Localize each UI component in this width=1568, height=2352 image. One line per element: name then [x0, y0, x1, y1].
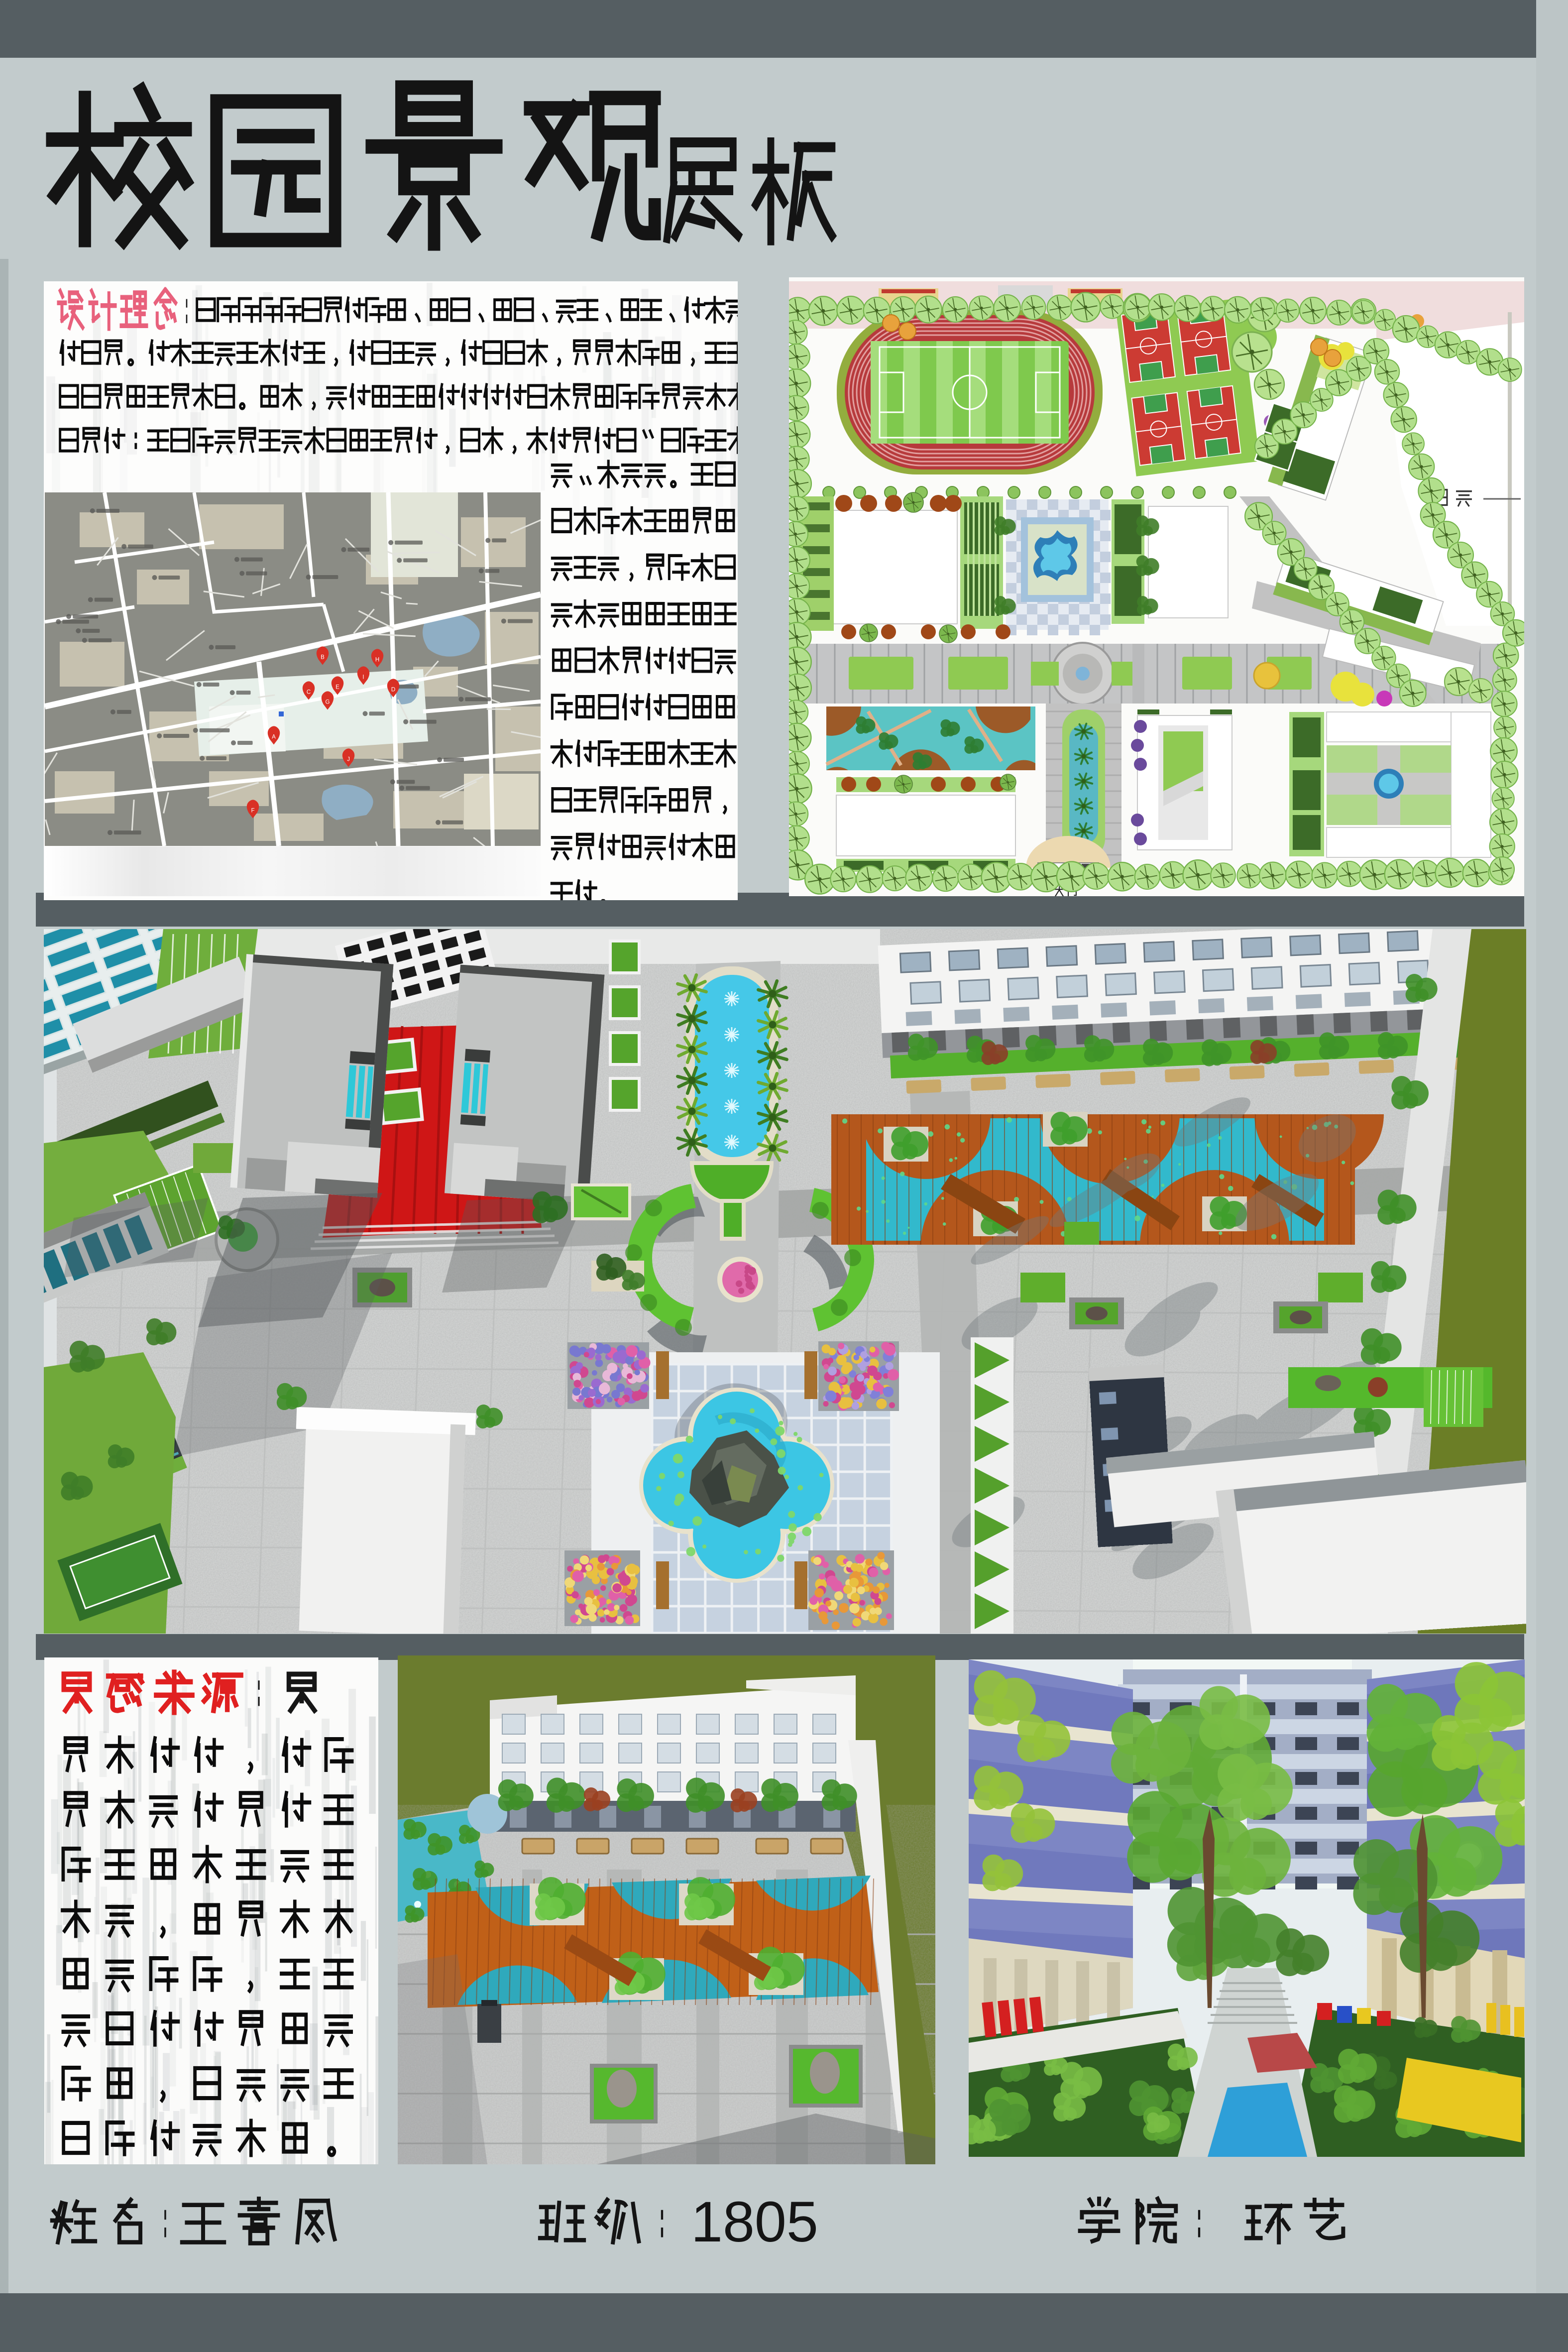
svg-text:H: H	[375, 657, 379, 663]
svg-text:A: A	[272, 734, 276, 740]
svg-text:D: D	[391, 687, 395, 693]
svg-text:C: C	[307, 689, 311, 695]
svg-text:J: J	[347, 756, 350, 762]
svg-text:I: I	[362, 674, 364, 680]
svg-text:B: B	[321, 654, 325, 660]
svg-text:E: E	[336, 684, 339, 690]
svg-text:1805: 1805	[691, 2190, 818, 2254]
svg-text:G: G	[326, 699, 330, 705]
svg-text:F: F	[251, 808, 254, 814]
